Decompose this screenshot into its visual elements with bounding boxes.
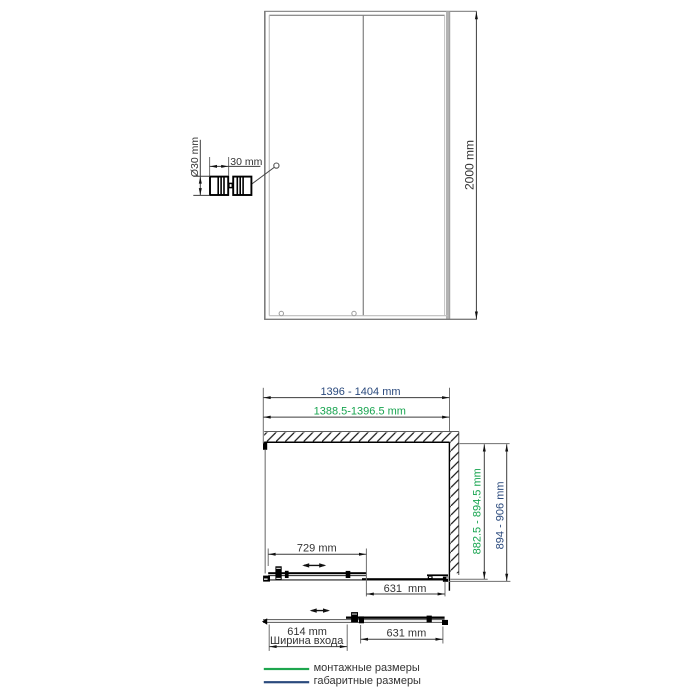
svg-text:30 mm: 30 mm [230, 156, 262, 168]
svg-text:1396 - 1404 mm: 1396 - 1404 mm [320, 386, 400, 398]
svg-text:894 - 906 mm: 894 - 906 mm [495, 481, 507, 549]
svg-text:631 mm: 631 mm [384, 583, 427, 595]
svg-text:882.5 - 894.5 mm: 882.5 - 894.5 mm [471, 468, 483, 554]
svg-text:Ø30 mm: Ø30 mm [189, 137, 201, 178]
svg-text:1388.5-1396.5 mm: 1388.5-1396.5 mm [314, 406, 406, 418]
svg-text:631 mm: 631 mm [387, 628, 427, 640]
svg-text:729 mm: 729 mm [297, 543, 337, 555]
svg-text:габаритные размеры: габаритные размеры [314, 675, 421, 687]
svg-text:2000 mm: 2000 mm [463, 140, 477, 190]
svg-text:монтажные размеры: монтажные размеры [314, 662, 420, 674]
svg-text:Ширина входа: Ширина входа [270, 635, 344, 647]
